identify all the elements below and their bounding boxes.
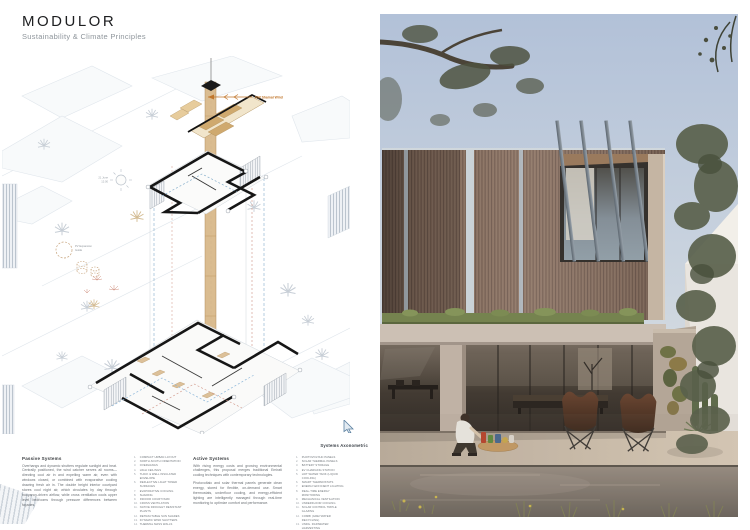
list-item: 11.Solar control triple glazing xyxy=(296,506,346,514)
glazing-strip xyxy=(466,150,474,320)
list-item: 12.Combi (greywater recycling) xyxy=(296,515,346,523)
passive-heading: Passive Systems xyxy=(22,456,117,461)
pv-expansion-annotation: PV Expansion Guide xyxy=(56,242,119,293)
sun-label-line1: 21 June xyxy=(98,176,108,180)
cursor-arrow-icon xyxy=(343,420,354,433)
passive-systems-column: Passive Systems Overhangs and dynamic sh… xyxy=(22,456,117,511)
return-wall-edge xyxy=(663,154,665,320)
roof-pv-assembly xyxy=(170,95,266,138)
list-item: 5.Thick & well insulated envelope xyxy=(134,473,187,481)
list-item: 11.Native drought resistant plants xyxy=(134,506,187,514)
glazing-strip xyxy=(519,150,523,320)
concrete-slab xyxy=(380,324,666,345)
pv-label-line1: PV Expansion xyxy=(75,244,92,248)
active-systems-list: 1.Photovoltaic panels2.Solar thermal pan… xyxy=(296,456,346,530)
sun-label-line2: 12:00 xyxy=(101,180,108,184)
diagram-caption-label: Systems Axonometric xyxy=(320,443,368,448)
passive-systems-list: 1.Compact urban layout2.North-south orie… xyxy=(134,456,187,527)
list-item: 5.Hot water tank (liquid cooling) xyxy=(296,473,346,481)
list-item: 6.Reflective light toned surfaces xyxy=(134,481,187,489)
sun-annotation: 21 June 12:00 xyxy=(98,169,132,191)
active-systems-column: Active Systems With rising energy costs … xyxy=(193,456,282,509)
ground-floor-plate xyxy=(90,320,300,434)
list-item: 13.Undg. rainwater harvesting xyxy=(296,523,346,530)
courtyard-glow xyxy=(578,348,612,390)
wind-label: NW Shamal Wind xyxy=(255,96,283,100)
active-body-2: Photovoltaic and solar thermal panels ge… xyxy=(193,481,282,505)
list-item: 8.Real-time energy monitoring xyxy=(296,490,346,498)
active-heading: Active Systems xyxy=(193,456,282,461)
presentation-board: MODULOR Sustainability & Climate Princip… xyxy=(0,0,750,530)
systems-axonometric-diagram: NW Shamal Wind xyxy=(2,56,350,434)
project-title: MODULOR xyxy=(22,13,146,30)
passive-body: Overhangs and dynamic shutters regulate … xyxy=(22,464,117,508)
exterior-render-photo xyxy=(380,14,738,517)
active-body-1: With rising energy costs and growing env… xyxy=(193,464,282,479)
board-header: MODULOR Sustainability & Climate Princip… xyxy=(22,13,146,41)
list-item: 14.Thermal mass walls xyxy=(134,523,187,527)
facade-return-wall xyxy=(648,154,665,320)
diagram-caption: Systems Axonometric xyxy=(288,420,368,452)
pv-label-line2: Guide xyxy=(75,248,83,252)
plant-sketches xyxy=(84,275,119,293)
board-subtitle: Sustainability & Climate Principles xyxy=(22,32,146,41)
